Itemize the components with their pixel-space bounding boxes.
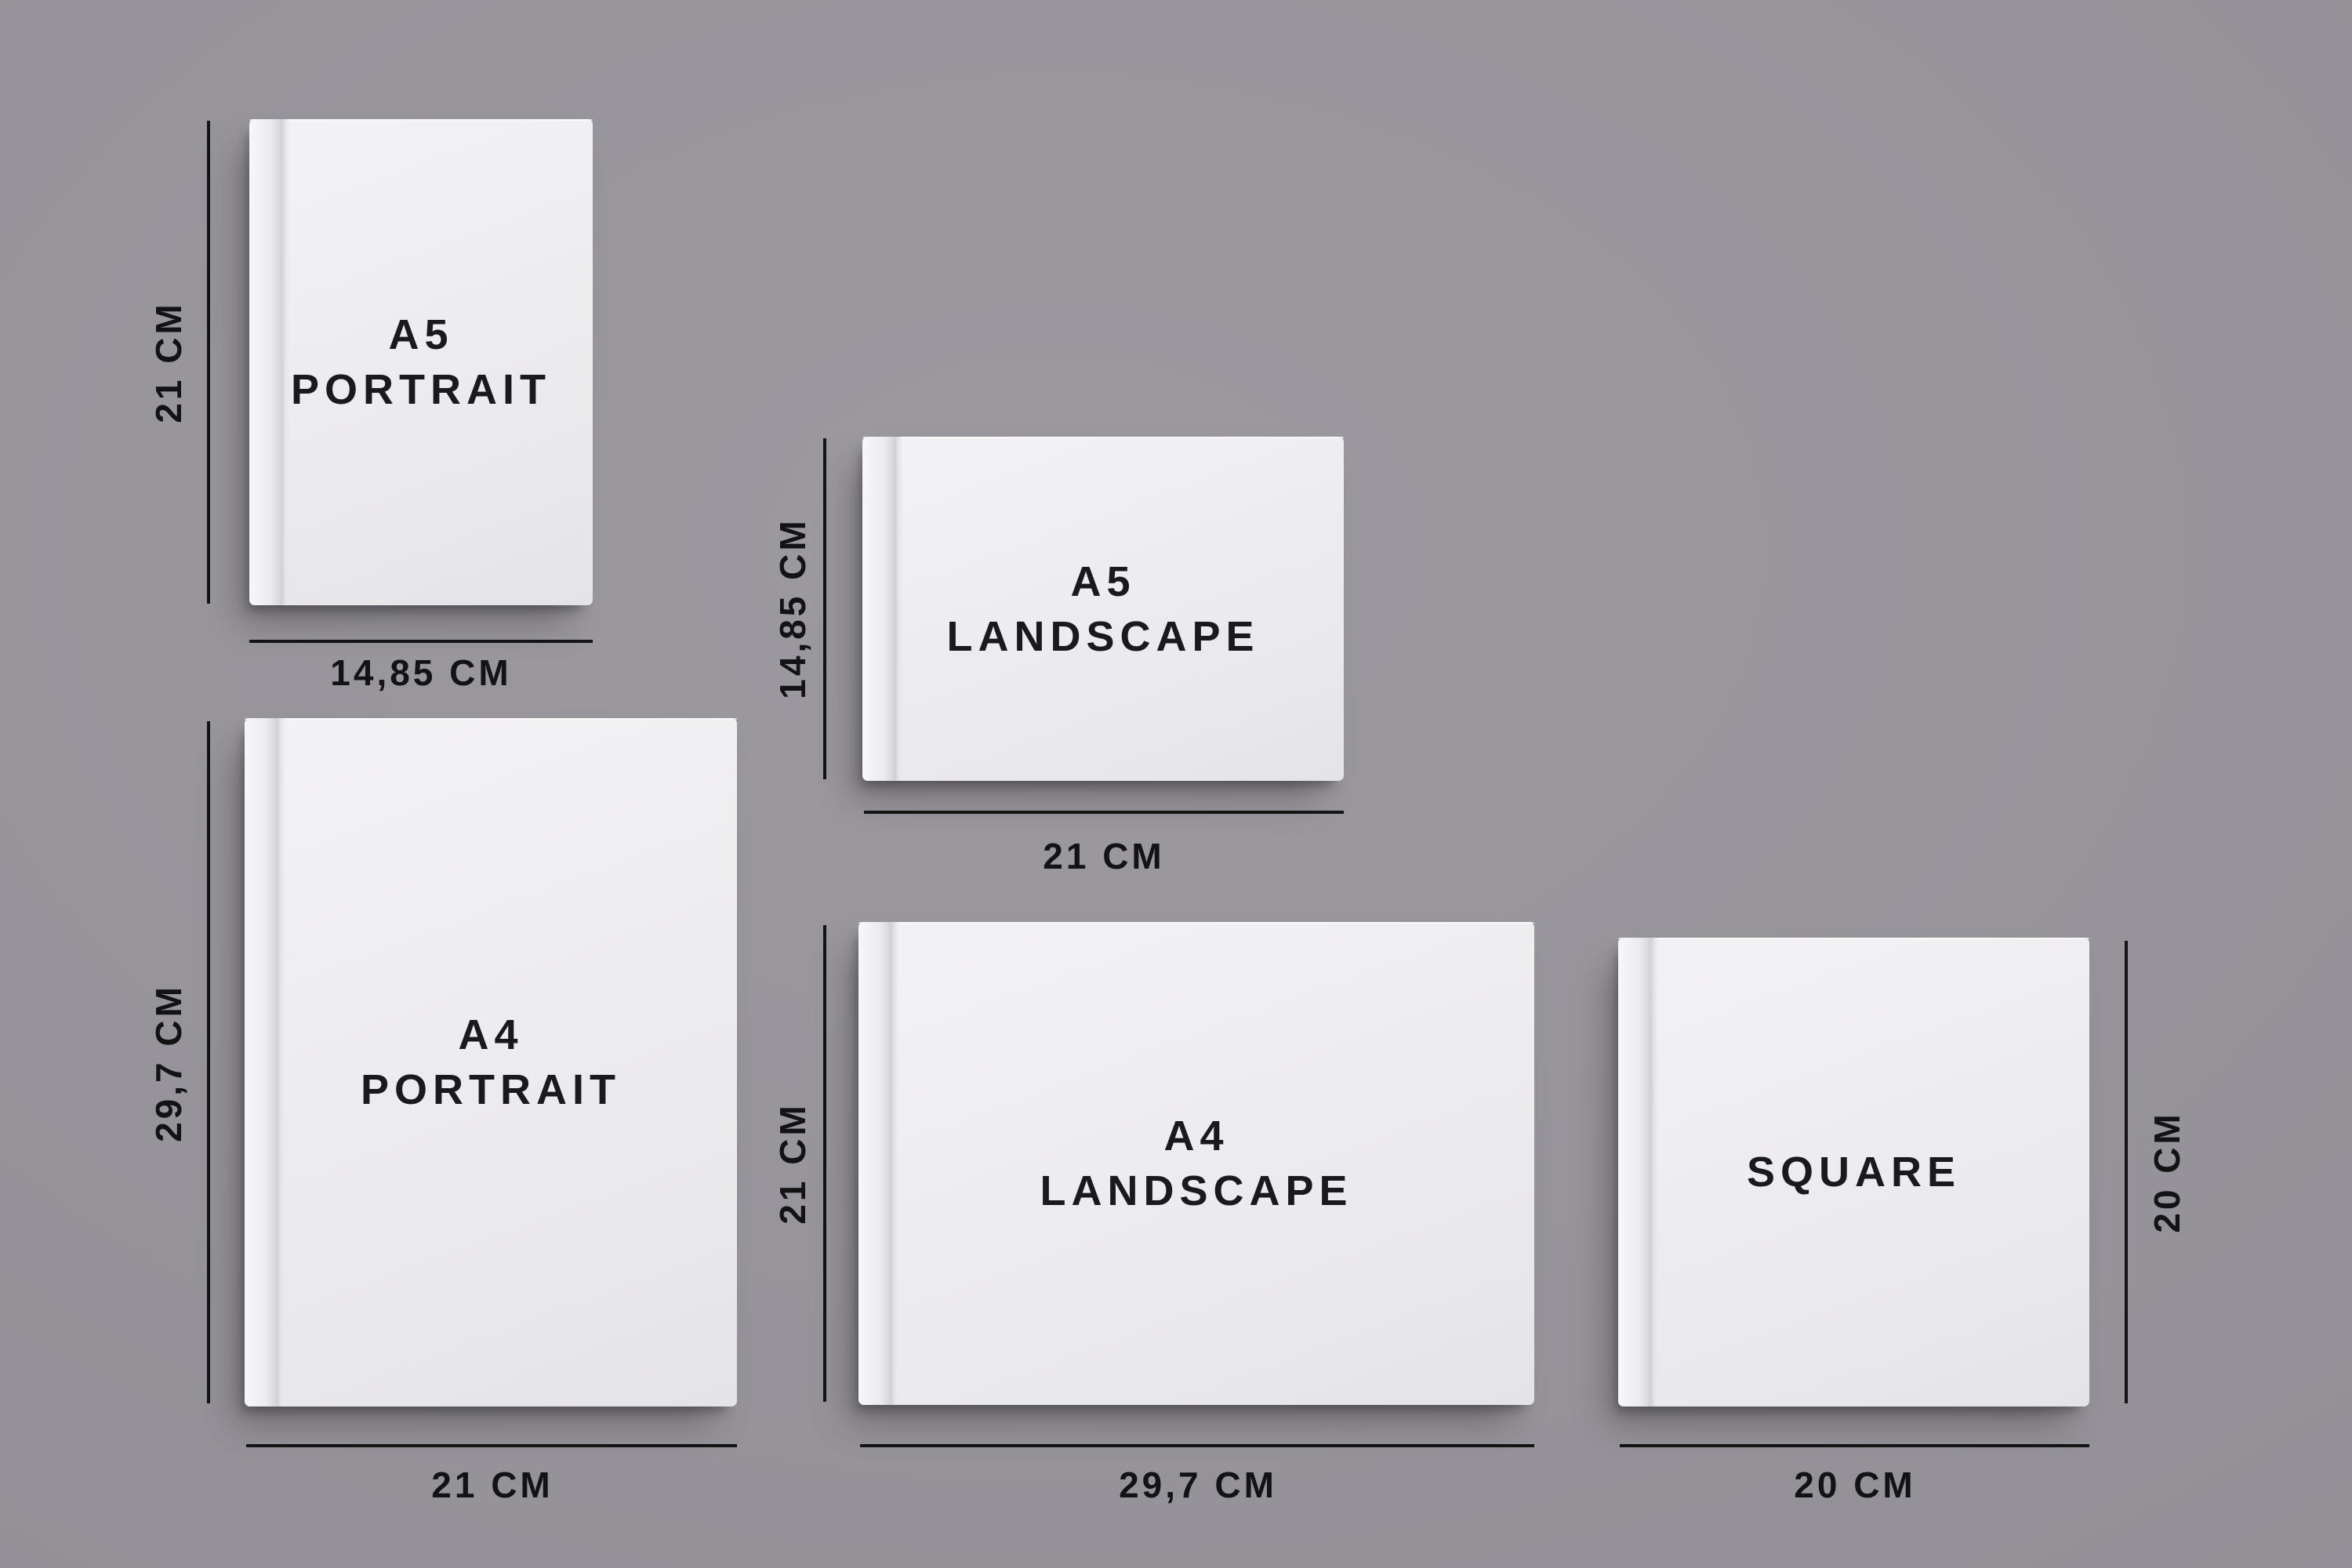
book-cover: SQUARE <box>1618 938 2089 1406</box>
height-dimension-label: 20 CM <box>2146 1111 2188 1232</box>
width-dimension-line <box>1620 1444 2089 1447</box>
book-title-line1: SQUARE <box>1747 1151 1961 1193</box>
height-dimension-line <box>2125 941 2128 1403</box>
book-title: SQUARE <box>1618 938 2089 1406</box>
book-size-comparison-canvas: 21 CM A5 PORTRAIT 14,85 CM 14,85 CM A5 L… <box>0 0 2352 1568</box>
width-dimension-label: 20 CM <box>1794 1464 1915 1506</box>
book-figure-square: 20 CM SQUARE 20 CM <box>0 0 2352 1568</box>
